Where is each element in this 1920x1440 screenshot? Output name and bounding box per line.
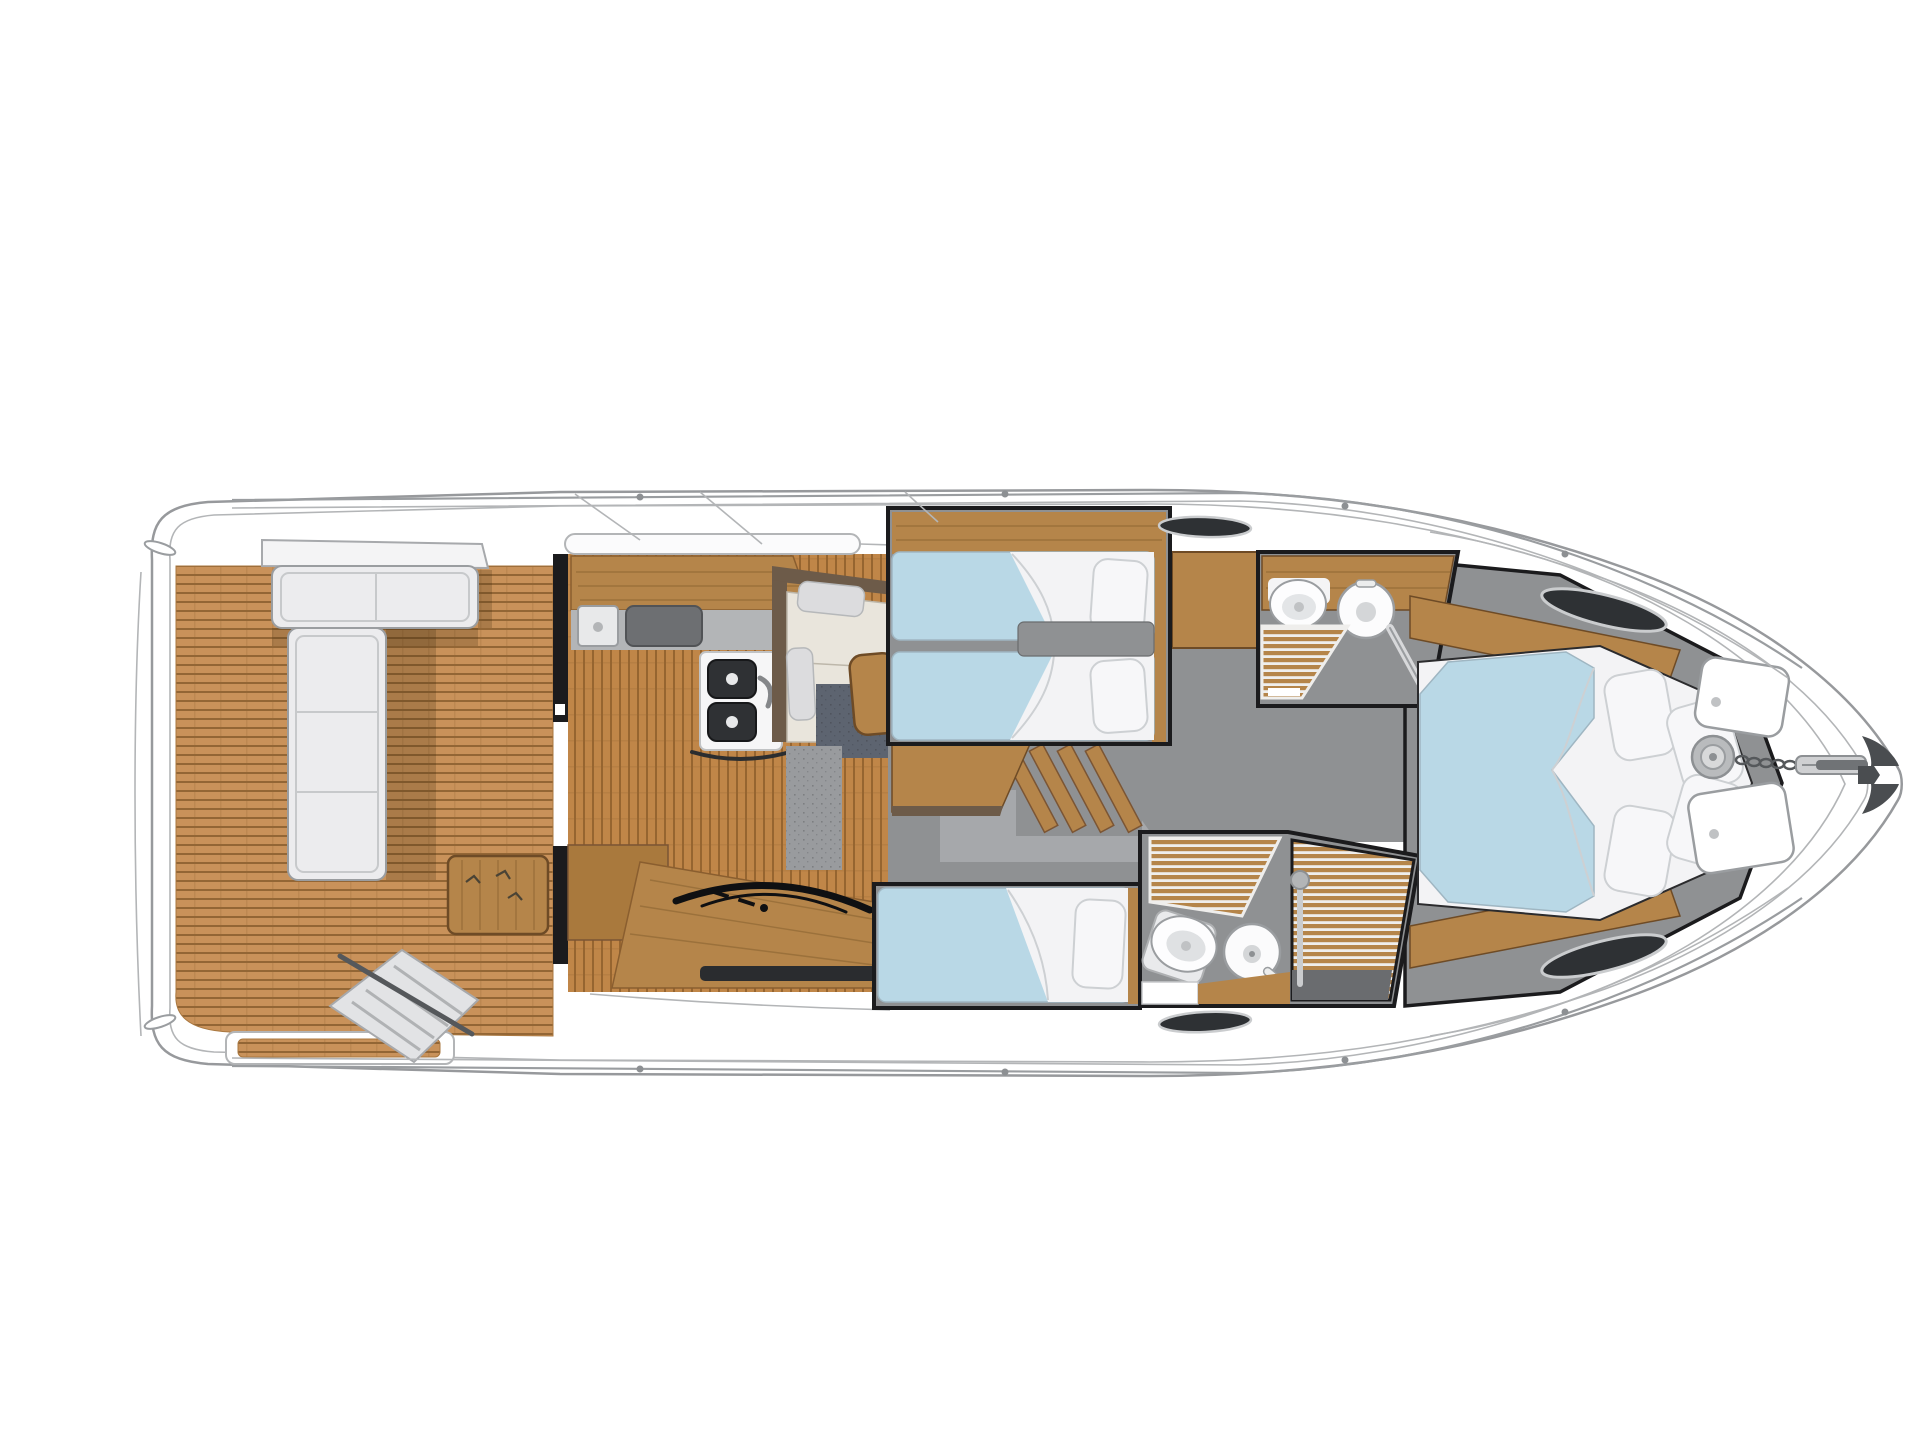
galley-sink-drain <box>593 622 603 632</box>
master-head-threshold <box>1268 688 1300 696</box>
guest-cabin <box>874 884 1140 1008</box>
bench-seat-side <box>288 628 386 880</box>
aft-deck <box>176 540 568 1064</box>
dinette-pillow-left <box>786 647 816 720</box>
sink-drain-2 <box>726 716 738 728</box>
deck-plan-canvas <box>0 0 1920 1440</box>
deck-hatch-forward <box>1693 656 1791 739</box>
salon-rug-gray-texture <box>786 746 842 870</box>
shower-base-mat <box>1292 970 1392 1000</box>
salon-door-mullion-bottom <box>553 846 568 964</box>
twin-cabin <box>888 508 1170 744</box>
salon-door-mullion-mark <box>555 704 565 715</box>
toilet-flush <box>1294 602 1304 612</box>
transom-line <box>135 572 141 1036</box>
washbasin-drain <box>1356 602 1376 622</box>
cockpit-table <box>448 856 548 934</box>
deck-hatch-aft <box>1686 781 1795 875</box>
washbasin-drain-dot <box>1249 951 1255 957</box>
shower-head <box>1291 871 1309 889</box>
windlass <box>1692 736 1734 778</box>
washbasin-faucet <box>1356 580 1376 587</box>
wardrobe-cabinet <box>1172 552 1258 648</box>
day-head <box>1140 832 1420 1006</box>
deck-plan-page <box>0 0 1920 1440</box>
hatch-knob <box>1711 697 1721 707</box>
twin-floor-gap <box>1018 622 1154 656</box>
toilet-flush <box>1181 941 1191 951</box>
dinette-pillow-top <box>797 581 866 618</box>
pillow <box>1090 658 1149 734</box>
salon-door-mullion-top <box>553 554 568 722</box>
sink-drain-1 <box>726 673 738 685</box>
wardrobe-floor-gray <box>1172 648 1258 744</box>
bench-backrest <box>262 540 488 568</box>
day-head-threshold <box>1142 982 1198 1004</box>
hatch-knob <box>1709 829 1719 839</box>
helm-door-track <box>700 966 892 981</box>
pillow <box>1072 899 1127 989</box>
twin-berth-2 <box>892 652 1154 740</box>
cooktop <box>626 606 702 646</box>
salon-roof-sill <box>565 534 860 554</box>
shower-stall <box>1291 840 1414 1000</box>
dinette-left-trim <box>772 580 787 742</box>
